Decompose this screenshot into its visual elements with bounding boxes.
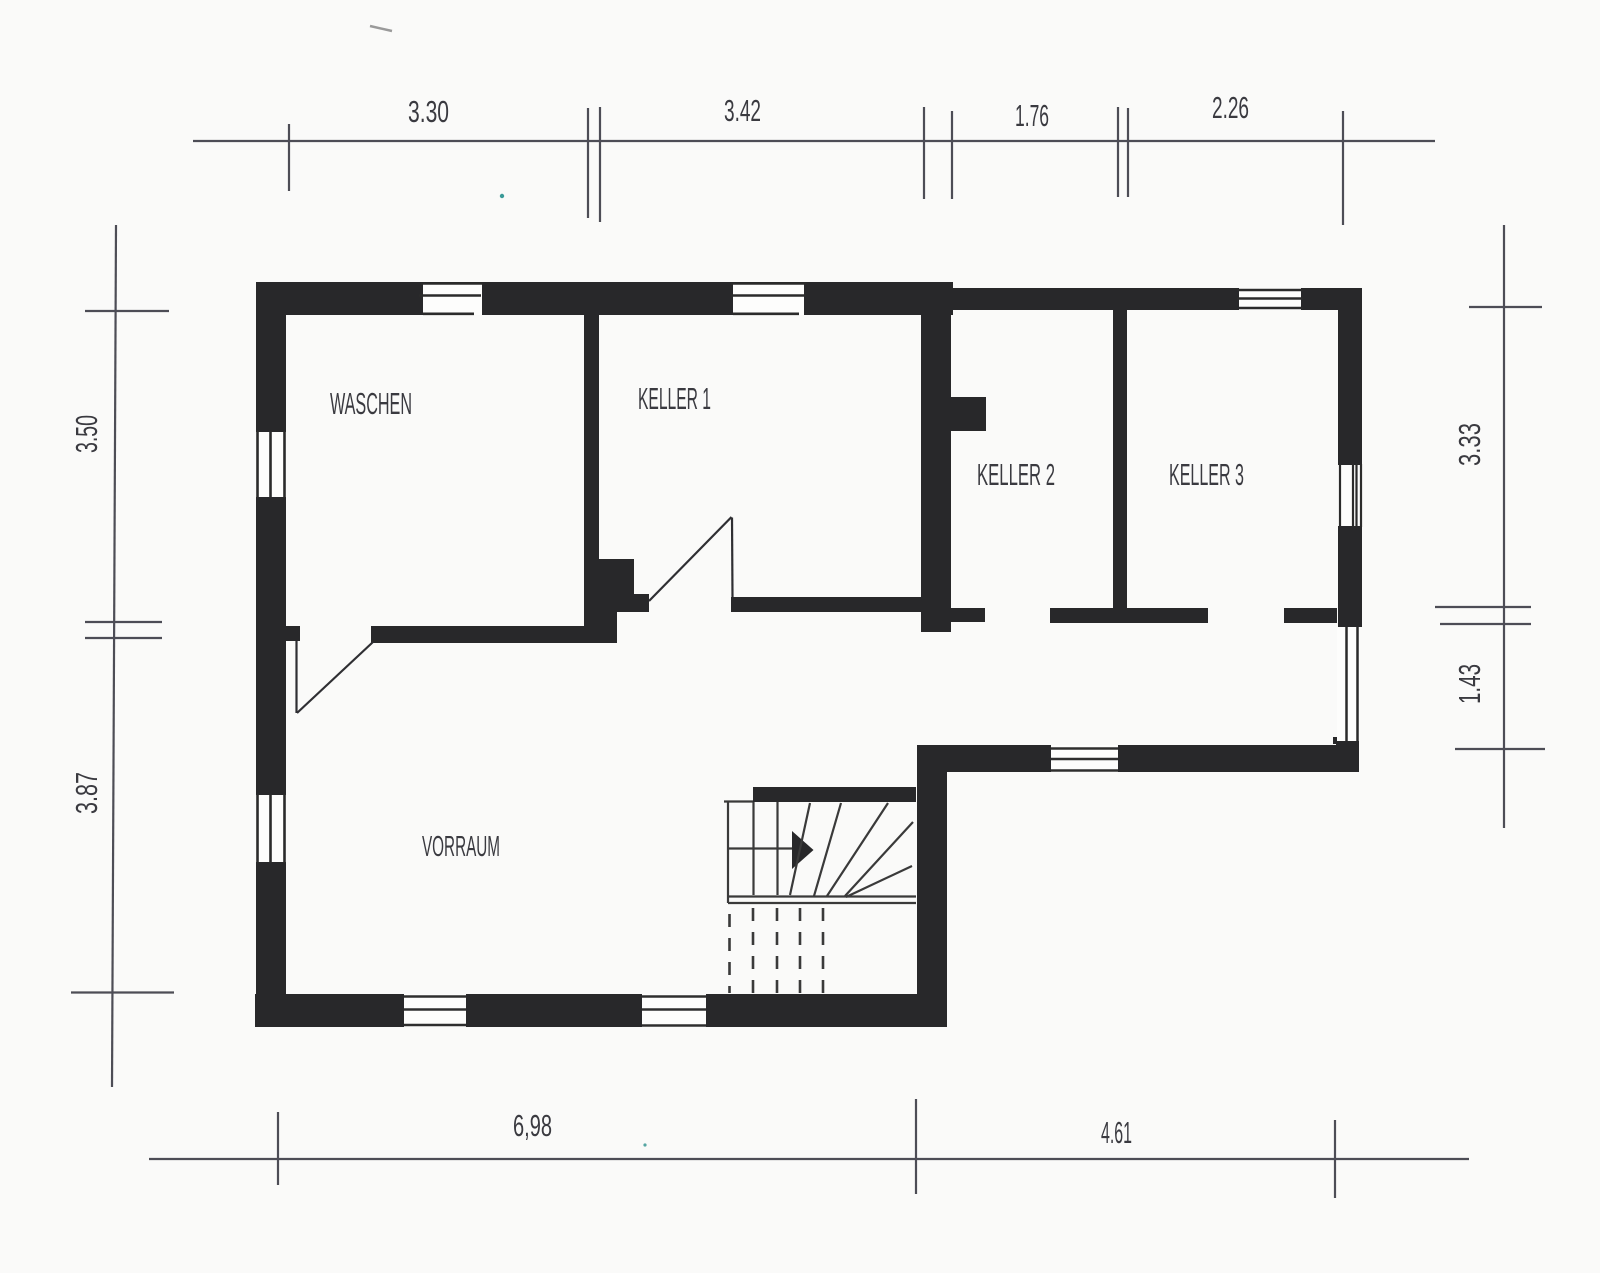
svg-text:WASCHEN: WASCHEN bbox=[330, 386, 412, 421]
svg-text:KELLER 1: KELLER 1 bbox=[638, 381, 711, 416]
svg-text:KELLER 3: KELLER 3 bbox=[1169, 457, 1244, 492]
svg-text:3.42: 3.42 bbox=[724, 93, 761, 128]
svg-text:1.76: 1.76 bbox=[1015, 98, 1049, 133]
svg-text:4.61: 4.61 bbox=[1101, 1115, 1132, 1150]
svg-text:3.33: 3.33 bbox=[1452, 423, 1487, 466]
svg-text:1.43: 1.43 bbox=[1452, 664, 1487, 704]
svg-text:2.26: 2.26 bbox=[1212, 90, 1249, 125]
svg-text:KELLER 2: KELLER 2 bbox=[977, 457, 1055, 492]
svg-text:6,98: 6,98 bbox=[513, 1108, 552, 1143]
svg-text:3.30: 3.30 bbox=[408, 94, 449, 129]
svg-text:3.50: 3.50 bbox=[69, 415, 104, 453]
svg-text:VORRAUM: VORRAUM bbox=[422, 831, 500, 863]
svg-text:3.87: 3.87 bbox=[69, 772, 104, 814]
